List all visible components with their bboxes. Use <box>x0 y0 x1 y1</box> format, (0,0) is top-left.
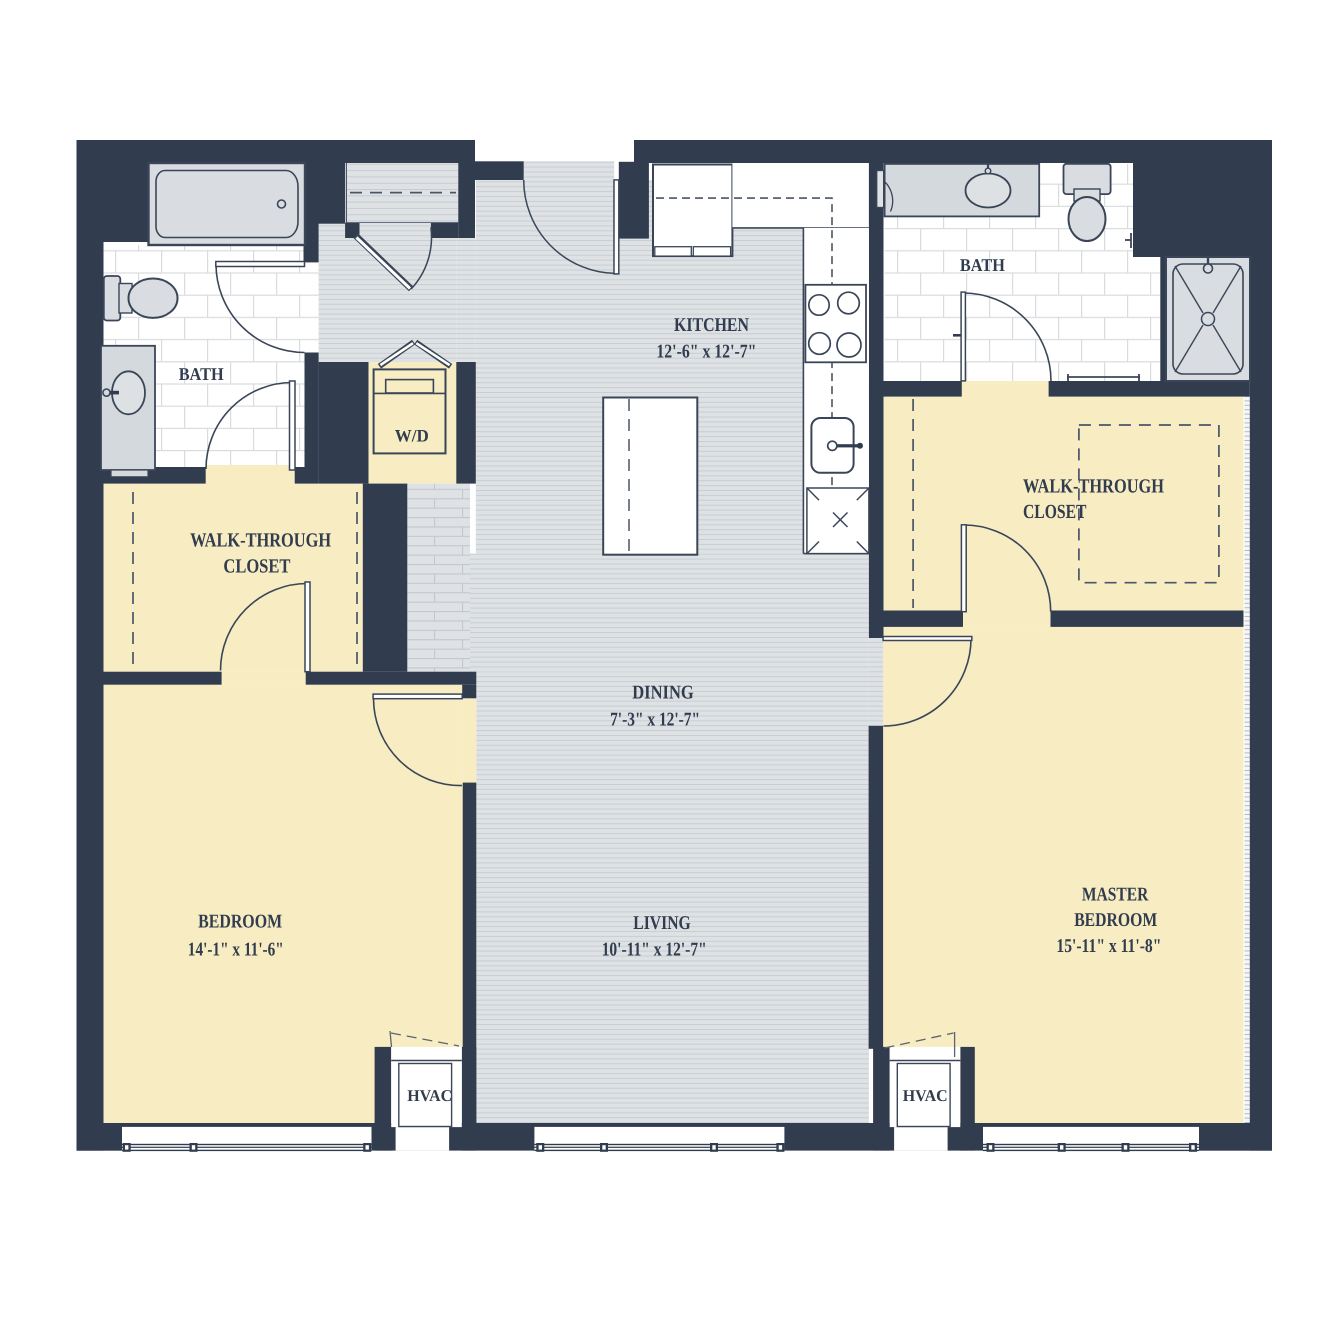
svg-text:14'-1" x 11'-6": 14'-1" x 11'-6" <box>188 939 284 960</box>
svg-text:W/D: W/D <box>395 426 429 446</box>
svg-text:HVAC: HVAC <box>903 1086 948 1105</box>
svg-text:BATH: BATH <box>960 255 1005 275</box>
svg-text:CLOSET: CLOSET <box>1023 501 1087 523</box>
svg-text:LIVING: LIVING <box>633 913 691 934</box>
svg-text:MASTER: MASTER <box>1082 885 1149 906</box>
svg-text:10'-11" x 12'-7": 10'-11" x 12'-7" <box>602 939 707 960</box>
svg-text:WALK-THROUGH: WALK-THROUGH <box>190 530 331 552</box>
svg-text:BATH: BATH <box>179 364 224 384</box>
svg-text:BEDROOM: BEDROOM <box>198 912 282 933</box>
svg-text:KITCHEN: KITCHEN <box>674 315 749 336</box>
svg-text:12'-6" x 12'-7": 12'-6" x 12'-7" <box>656 341 756 362</box>
svg-text:CLOSET: CLOSET <box>223 556 291 578</box>
svg-text:15'-11" x 11'-8": 15'-11" x 11'-8" <box>1056 936 1161 957</box>
svg-text:HVAC: HVAC <box>407 1086 452 1105</box>
svg-text:7'-3" x 12'-7": 7'-3" x 12'-7" <box>610 709 700 730</box>
svg-text:WALK-THROUGH: WALK-THROUGH <box>1023 476 1164 498</box>
svg-text:DINING: DINING <box>632 683 694 704</box>
svg-text:BEDROOM: BEDROOM <box>1074 910 1157 931</box>
